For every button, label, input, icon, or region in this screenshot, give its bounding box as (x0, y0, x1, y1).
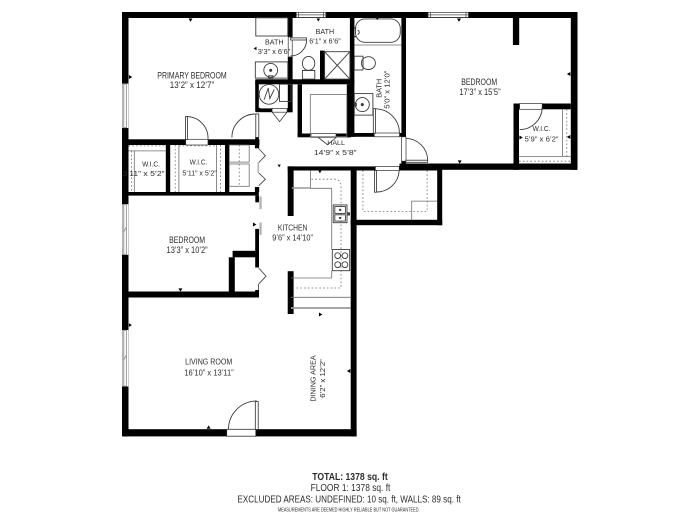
svg-text:13’3” x 10’2”: 13’3” x 10’2” (167, 245, 208, 255)
svg-text:16’10” x 13’11”: 16’10” x 13’11” (184, 367, 233, 377)
svg-text:MEASUREMENTS ARE DEEMED HIGHLY: MEASUREMENTS ARE DEEMED HIGHLY RELIABLE … (278, 507, 420, 513)
svg-text:DINING AREA: DINING AREA (309, 355, 318, 401)
svg-text:6’1” x 6’6”: 6’1” x 6’6” (309, 36, 341, 45)
svg-text:13’2” x 12’7”: 13’2” x 12’7” (170, 80, 214, 90)
svg-text:LIVING ROOM: LIVING ROOM (185, 357, 232, 367)
svg-text:9’6” x 14’10”: 9’6” x 14’10” (272, 233, 313, 242)
svg-text:TOTAL: 1378 sq. ft: TOTAL: 1378 sq. ft (312, 472, 388, 483)
svg-text:EXCLUDED AREAS: UNDEFINED: 10: EXCLUDED AREAS: UNDEFINED: 10 sq. ft, WA… (238, 494, 461, 505)
svg-text:W.I.C.: W.I.C. (190, 157, 208, 166)
svg-text:5’9” x 6’2”: 5’9” x 6’2” (525, 135, 560, 144)
svg-text:5’0” x 12’0”: 5’0” x 12’0” (383, 70, 392, 109)
svg-text:6’2” x 12’2”: 6’2” x 12’2” (318, 359, 327, 398)
svg-text:BATH: BATH (316, 27, 335, 36)
svg-text:HALL: HALL (327, 140, 345, 147)
svg-text:3’3” x 6’6”: 3’3” x 6’6” (258, 47, 291, 56)
svg-text:KITCHEN: KITCHEN (278, 224, 308, 233)
svg-text:17’3” x 15’5”: 17’3” x 15’5” (459, 87, 500, 97)
svg-text:14’9” x 5’8”: 14’9” x 5’8” (314, 148, 357, 157)
svg-text:PRIMARY BEDROOM: PRIMARY BEDROOM (157, 71, 226, 81)
svg-text:W.I.C.: W.I.C. (142, 160, 160, 169)
svg-text:W.I.C.: W.I.C. (533, 124, 551, 133)
svg-text:5’11” x 5’2”: 5’11” x 5’2” (182, 168, 217, 177)
svg-text:FLOOR 1: 1378 sq. ft: FLOOR 1: 1378 sq. ft (311, 483, 391, 494)
svg-text:BEDROOM: BEDROOM (461, 77, 497, 87)
svg-text:3’11” x 5’2”: 3’11” x 5’2” (123, 169, 166, 178)
svg-text:BEDROOM: BEDROOM (169, 235, 205, 245)
svg-text:BATH: BATH (265, 37, 284, 46)
